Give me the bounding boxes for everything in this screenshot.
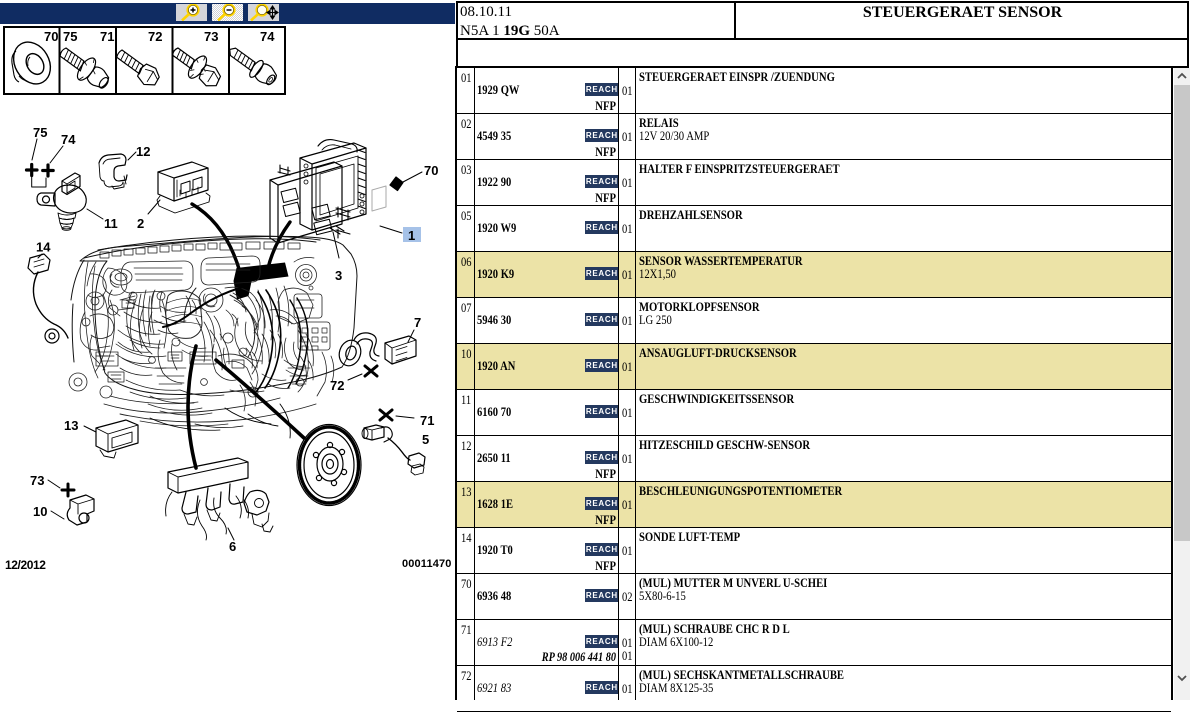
svg-text:12: 12 [136,144,150,159]
svg-text:74: 74 [260,29,275,44]
svg-text:6: 6 [229,539,236,554]
svg-text:7: 7 [414,315,421,330]
svg-text:73: 73 [30,473,44,488]
svg-text:13: 13 [64,418,78,433]
svg-text:72: 72 [148,29,162,44]
svg-text:1: 1 [408,228,415,243]
svg-text:73: 73 [204,29,218,44]
svg-text:14: 14 [36,240,51,255]
svg-text:71: 71 [420,413,434,428]
svg-text:74: 74 [61,132,76,147]
svg-text:10: 10 [33,504,47,519]
svg-text:71: 71 [100,29,114,44]
svg-text:3: 3 [335,268,342,283]
svg-text:70: 70 [44,29,58,44]
svg-text:70: 70 [424,163,438,178]
svg-text:11: 11 [104,216,118,231]
svg-text:75: 75 [33,125,47,140]
svg-text:72: 72 [330,378,344,393]
svg-text:5: 5 [422,432,429,447]
svg-text:75: 75 [63,29,77,44]
svg-text:2: 2 [137,216,144,231]
